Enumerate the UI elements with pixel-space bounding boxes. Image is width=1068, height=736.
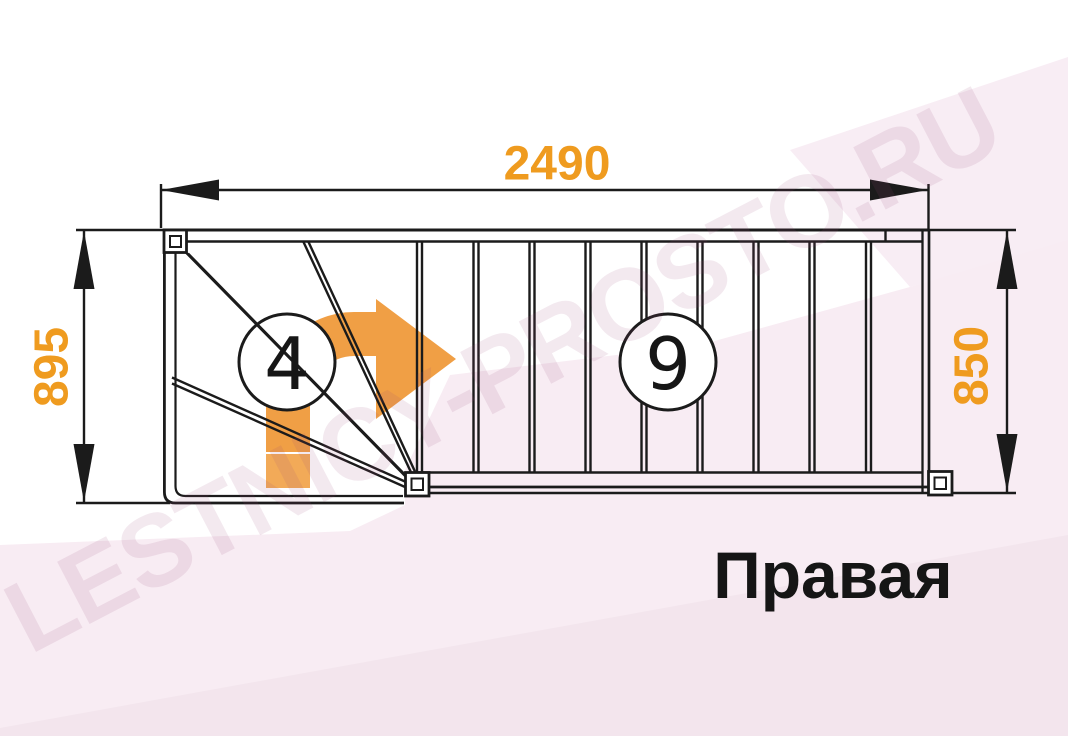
staircase-plan-canvas: 4 9 2490 895 850 Правая LESTNICY-PROSTO.… <box>0 0 1068 736</box>
staircase-plan-diagram: 4 9 2490 895 850 Правая LESTNICY-PROSTO.… <box>0 0 1068 736</box>
winder-steps-count: 4 <box>264 322 310 406</box>
dimension-top-arrow-left <box>161 180 219 201</box>
dimension-left-label: 895 <box>26 327 79 407</box>
dimension-left: 895 <box>26 230 171 503</box>
dimension-left-arrow-top <box>74 231 95 289</box>
dimension-top-label: 2490 <box>504 138 611 191</box>
orientation-title: Правая <box>713 538 952 612</box>
post-top-left-inner <box>170 236 181 247</box>
dimension-right-label: 850 <box>946 326 999 406</box>
post-bottom-right-inner <box>935 478 947 490</box>
dimension-left-arrow-bottom <box>74 444 95 502</box>
